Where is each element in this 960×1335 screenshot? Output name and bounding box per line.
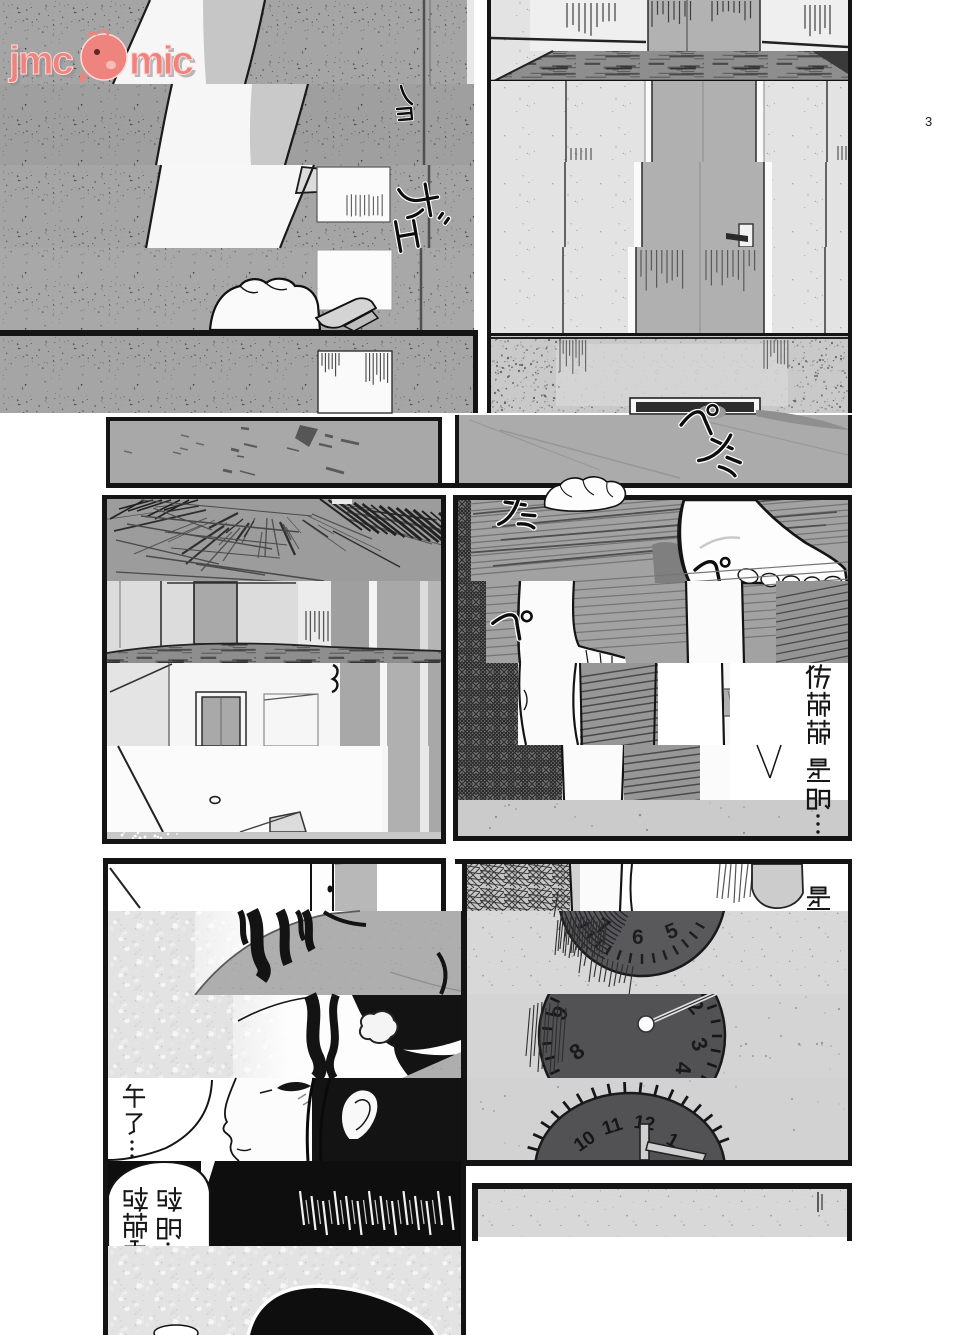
svg-text:6: 6: [632, 926, 644, 949]
svg-text:3: 3: [925, 114, 932, 129]
svg-text:jmc: jmc: [8, 39, 74, 83]
svg-text:mic: mic: [129, 39, 194, 83]
